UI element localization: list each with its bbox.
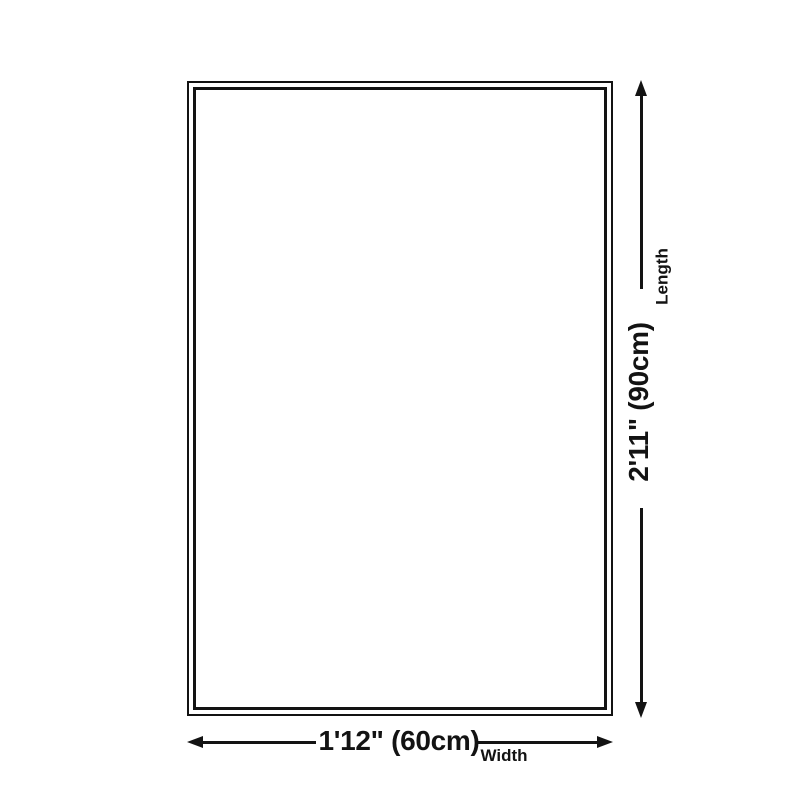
arrow-right-icon — [597, 736, 613, 748]
width-line-right-segment — [478, 741, 597, 744]
rug-inner-border — [193, 87, 607, 710]
length-value: 2'11" (90cm) — [622, 317, 656, 487]
width-line-left-segment — [202, 741, 316, 744]
length-axis-label: Length — [652, 242, 673, 312]
arrow-left-icon — [187, 736, 203, 748]
length-line-top-segment — [640, 94, 643, 289]
dimension-diagram: Length 2'11" (90cm) 1'12" (60cm) Width — [0, 0, 800, 800]
length-line-bottom-segment — [640, 508, 643, 702]
width-value: 1'12" (60cm) — [314, 725, 484, 757]
arrow-down-icon — [635, 702, 647, 718]
width-axis-label: Width — [477, 745, 531, 766]
rug-outline — [187, 81, 613, 716]
